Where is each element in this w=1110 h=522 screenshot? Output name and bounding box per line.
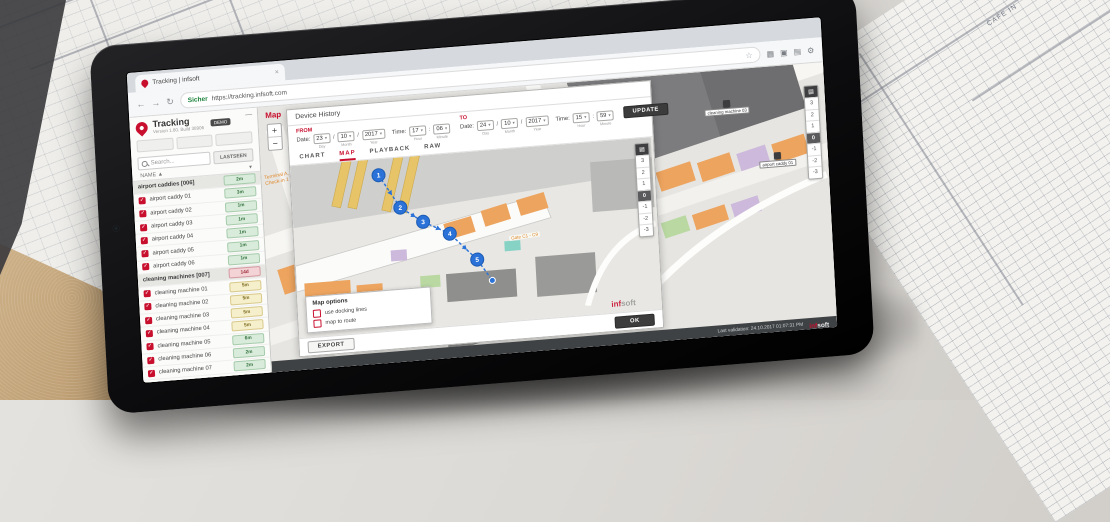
ok-button[interactable]: OK <box>615 313 655 328</box>
lastseen-badge: 5m <box>231 306 263 319</box>
lastseen-badge: 3m <box>224 187 256 200</box>
gear-icon[interactable]: ⚙ <box>807 45 815 55</box>
checkbox-checked[interactable]: ✓ <box>146 330 153 338</box>
svg-text:4: 4 <box>448 231 452 238</box>
forward-icon[interactable]: → <box>151 98 160 108</box>
infsoft-watermark: infsoft <box>611 298 636 309</box>
tablet-device: Tracking | infsoft × ← → ↻ Sicher https:… <box>89 0 874 415</box>
close-tab-icon[interactable]: × <box>275 69 279 76</box>
search-icon <box>141 160 147 166</box>
tab-raw[interactable]: RAW <box>424 143 441 154</box>
lastseen-badge: 5m <box>231 319 263 332</box>
name-column-header[interactable]: NAME ▲ <box>140 171 163 179</box>
extension-icon-2[interactable]: ▣ <box>780 48 788 58</box>
lastseen-badge: 2m <box>233 359 265 372</box>
lastseen-badge: 1m <box>228 253 260 266</box>
from-month-select[interactable]: 10▾ <box>337 131 354 142</box>
column-menu-icon[interactable]: ▾ <box>249 164 252 170</box>
to-hour-select[interactable]: 15▾ <box>572 112 589 123</box>
back-icon[interactable]: ← <box>136 99 145 109</box>
lastseen-badge: 6m <box>232 333 264 346</box>
from-hour-select[interactable]: 17▾ <box>409 125 426 136</box>
lastseen-badge: 1m <box>226 226 258 239</box>
checkbox-unchecked[interactable] <box>313 319 321 328</box>
main-map[interactable]: Map + − Terminal A, Check-in 1 ▤ 3 2 1 0… <box>258 62 838 373</box>
checkbox-checked[interactable]: ✓ <box>138 197 145 205</box>
tab-map[interactable]: MAP <box>339 150 356 161</box>
from-day-select[interactable]: 23▾ <box>313 133 330 144</box>
svg-text:3: 3 <box>421 219 425 226</box>
sidebar-collapse-icon[interactable]: — <box>245 111 252 119</box>
checkbox-checked[interactable]: ✓ <box>144 290 151 298</box>
search-placeholder: Search... <box>150 158 174 166</box>
export-button[interactable]: EXPORT <box>307 337 354 353</box>
checkbox-checked[interactable]: ✓ <box>145 316 152 324</box>
extension-icon-3[interactable]: ▤ <box>793 46 801 56</box>
last-validation-text: Last validation: 24.10.2017 01:07:31 PM <box>717 322 803 334</box>
device-marker-icon <box>723 100 730 108</box>
checkbox-checked[interactable]: ✓ <box>140 223 147 231</box>
favicon-pin-icon <box>140 78 150 88</box>
floor-option[interactable]: -3 <box>639 223 653 236</box>
svg-text:2: 2 <box>398 205 402 212</box>
to-day-select[interactable]: 24▾ <box>477 120 494 131</box>
svg-text:5: 5 <box>475 257 479 264</box>
zoom-in-button[interactable]: + <box>268 124 282 137</box>
extension-icon-1[interactable]: ▦ <box>766 49 774 59</box>
to-minute-select[interactable]: 59▾ <box>597 110 614 121</box>
checkbox-checked[interactable]: ✓ <box>142 263 149 271</box>
tablet-screen: Tracking | infsoft × ← → ↻ Sicher https:… <box>127 17 838 382</box>
lastseen-badge: 2m <box>223 173 255 186</box>
sidebar-toolbar-button-3[interactable] <box>215 131 252 146</box>
url-text: https://tracking.infsoft.com <box>211 89 287 102</box>
map-zoom-control: + − <box>267 123 283 151</box>
lastseen-badge: 1m <box>227 240 259 253</box>
tracking-app: Tracking Version 1.80, Build 38906 DEMO … <box>129 62 837 383</box>
from-year-select[interactable]: 2017▾ <box>362 129 386 141</box>
to-year-select[interactable]: 2017▾ <box>525 115 549 127</box>
device-marker-icon <box>774 152 781 160</box>
sidebar-toolbar-button-2[interactable] <box>176 134 213 149</box>
device-list: airport caddies [006] 2m ✓airport caddy … <box>133 172 272 383</box>
zoom-out-button[interactable]: − <box>268 136 282 150</box>
tab-title: Tracking | infsoft <box>152 75 200 86</box>
bookmark-star-icon[interactable]: ☆ <box>745 50 753 60</box>
checkbox-checked[interactable]: ✓ <box>146 343 153 351</box>
secure-label: Sicher <box>188 95 208 104</box>
device-history-panel: Device History FROM Date: 23▾Day / 10▾Mo… <box>286 80 664 357</box>
checkbox-checked[interactable]: ✓ <box>141 237 148 245</box>
checkbox-checked[interactable]: ✓ <box>148 370 155 378</box>
checkbox-checked[interactable]: ✓ <box>147 356 154 364</box>
lastseen-column-header[interactable]: LASTSEEN <box>213 148 254 164</box>
checkbox-unchecked[interactable] <box>313 309 321 318</box>
history-map[interactable]: 1 2 3 4 5 Gate C1 - C9 ▤ 3 2 <box>290 137 662 338</box>
lastseen-badge: 5m <box>229 279 261 292</box>
lastseen-badge: 14d <box>228 266 260 279</box>
lastseen-badge: 2m <box>233 346 265 359</box>
to-month-select[interactable]: 10▾ <box>501 118 518 129</box>
checkbox-checked[interactable]: ✓ <box>144 303 151 311</box>
floor-option[interactable]: -3 <box>809 166 823 179</box>
lastseen-badge: 5m <box>230 293 262 306</box>
account-badge: DEMO <box>211 117 231 126</box>
sidebar-toolbar-button-1[interactable] <box>136 138 173 153</box>
svg-text:1: 1 <box>377 172 381 179</box>
checkbox-checked[interactable]: ✓ <box>141 250 148 258</box>
tablet-camera <box>113 225 119 231</box>
device-marker[interactable]: airport caddy 01 <box>759 151 797 169</box>
map-section-title: Map <box>265 110 281 120</box>
reload-icon[interactable]: ↻ <box>166 97 174 107</box>
sidebar: Tracking Version 1.80, Build 38906 DEMO … <box>129 108 272 383</box>
lastseen-badge: 1m <box>225 200 257 213</box>
from-minute-select[interactable]: 06▾ <box>433 123 450 134</box>
checkbox-checked[interactable]: ✓ <box>139 210 146 218</box>
app-logo-pin-icon <box>133 120 150 137</box>
lastseen-badge: 1m <box>226 213 258 226</box>
